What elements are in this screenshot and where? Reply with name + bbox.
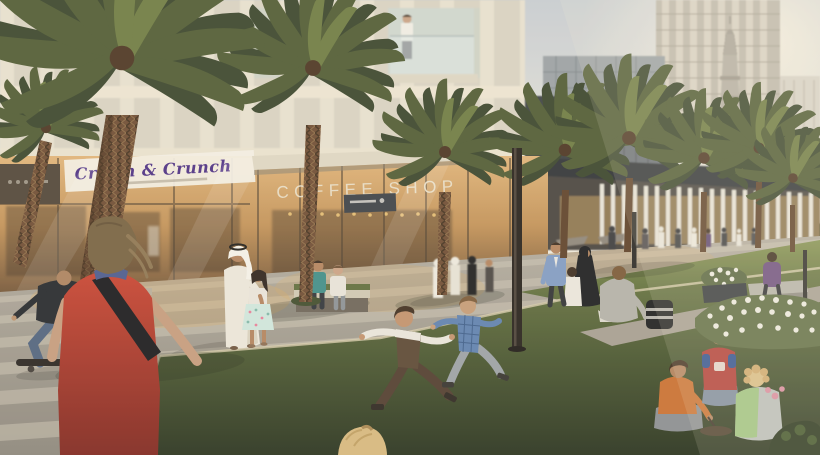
promenade-rendering: Cream & Crunch COFFEE SHOP [0, 0, 820, 455]
